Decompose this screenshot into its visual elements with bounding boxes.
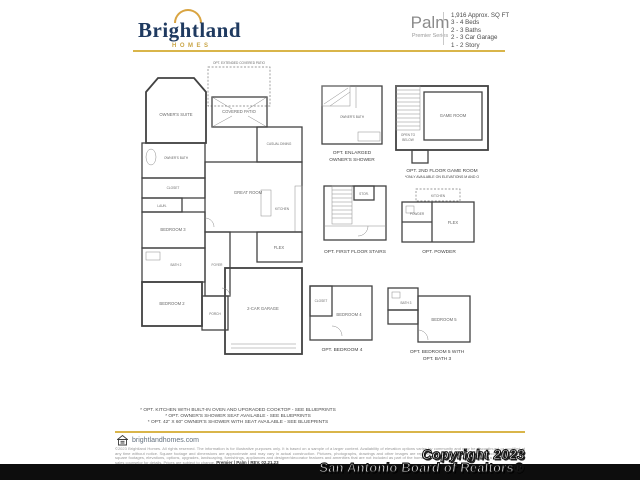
label-laundry: LAUN. <box>157 204 167 208</box>
inset-powder: KITCHEN POWDER FLEX OPT. POWDER <box>396 186 482 258</box>
label-powder: POWDER <box>410 212 425 216</box>
header-divider <box>443 12 444 45</box>
inset-enlarged-shower: OWNER'S BATH OPT. ENLARGED OWNER'S SHOWE… <box>312 82 392 166</box>
label-kitchen: KITCHEN <box>431 194 446 198</box>
watermark-board: San Antonio Board of Realtors® <box>318 461 524 475</box>
inset-bedroom5-bath3: BATH 3 BEDROOM 5 OPT. BEDROOM 5 WITH OPT… <box>380 282 480 362</box>
spec-baths: 2 - 3 Baths <box>451 27 509 34</box>
caption-line1: OPT. 2ND FLOOR GAME ROOM <box>406 168 477 174</box>
caption-line1: OPT. ENLARGED <box>333 150 372 156</box>
caption-line1: OPT. FIRST FLOOR STAIRS <box>324 249 386 255</box>
label-bath2: BATH 2 <box>171 263 182 267</box>
footer-site-row: brightlandhomes.com <box>117 435 199 446</box>
label-bedroom4: BEDROOM 4 <box>336 312 362 317</box>
inset-game-room: OPEN TO BELOW GAME ROOM OPT. 2ND FLOOR G… <box>392 82 492 182</box>
footnote-3: * OPT. 42" X 60" OWNER'S SHOWER WITH SEA… <box>132 420 344 426</box>
label-owners-bath: OWNER'S BATH <box>340 115 365 119</box>
caption-line1: OPT. POWDER <box>422 249 456 255</box>
spec-sqft: 1,916 Approx. SQ FT <box>451 12 509 19</box>
label-porch: PORCH <box>209 312 221 316</box>
label-covered-patio: COVERED PATIO <box>222 109 257 114</box>
label-owners-bath: OWNER'S BATH <box>164 156 189 160</box>
label-kitchen: KITCHEN <box>275 207 290 211</box>
label-great-room: GREAT ROOM <box>234 190 263 195</box>
label-below: BELOW <box>402 138 414 142</box>
equal-housing-icon <box>117 435 128 446</box>
label-bedroom3: BEDROOM 3 <box>160 227 186 232</box>
flyer-page: Brightland HOMES Palm Premier Series 1,9… <box>0 0 640 480</box>
logo-wordmark: Brightland <box>138 18 241 43</box>
website-url: brightlandhomes.com <box>132 437 199 444</box>
logo-homes-text: HOMES <box>172 43 212 49</box>
inset-first-floor-stairs: STOR. OPT. FIRST FLOOR STAIRS <box>310 180 400 260</box>
label-closet: CLOSET <box>167 186 180 190</box>
spec-garage: 2 - 3 Car Garage <box>451 34 509 41</box>
label-casual-dining: CASUAL DINING <box>267 142 292 146</box>
main-floorplan: OPT. EXTENDED COVERED PATIO OWNER'S SUIT… <box>136 58 312 402</box>
footer-rule <box>115 431 525 433</box>
label-game-room: GAME ROOM <box>440 113 467 118</box>
caption-line1: OPT. BEDROOM 5 WITH <box>410 349 465 355</box>
label-bedroom2: BEDROOM 2 <box>159 301 185 306</box>
label-ext-patio: OPT. EXTENDED COVERED PATIO <box>213 61 265 65</box>
label-owners-suite: OWNER'S SUITE <box>159 112 192 117</box>
header-rule <box>133 50 505 52</box>
label-garage: 2-CAR GARAGE <box>247 306 279 311</box>
walls <box>324 186 386 240</box>
spec-story: 1 - 2 Story <box>451 42 509 49</box>
mls-watermark: Copyright 2023 San Antonio Board of Real… <box>318 448 525 475</box>
walls <box>388 288 470 342</box>
label-bath3: BATH 3 <box>401 301 412 305</box>
caption-line2: OPT. BATH 3 <box>423 356 452 362</box>
label-bedroom5: BEDROOM 5 <box>431 317 457 322</box>
walls <box>396 86 488 163</box>
label-flex: FLEX <box>274 245 285 250</box>
caption-line2: *ONLY AVAILABLE ON ELEVATIONS M AND O <box>405 175 479 179</box>
label-flex: FLEX <box>448 220 459 225</box>
inset-bedroom4: CLOSET BEDROOM 4 OPT. BEDROOM 4 <box>302 282 382 356</box>
label-closet: CLOSET <box>315 299 328 303</box>
label-open-to: OPEN TO <box>401 133 416 137</box>
spec-list: 1,916 Approx. SQ FT 3 - 4 Beds 2 - 3 Bat… <box>451 12 509 49</box>
spec-beds: 3 - 4 Beds <box>451 19 509 26</box>
label-foyer: FOYER <box>212 263 224 267</box>
caption-line1: OPT. BEDROOM 4 <box>322 347 363 353</box>
footnote-list: * OPT. KITCHEN WITH BUILT-IN OVEN AND UP… <box>132 408 344 426</box>
caption-line2: OWNER'S SHOWER <box>329 157 375 163</box>
label-storage: STOR. <box>359 192 369 196</box>
